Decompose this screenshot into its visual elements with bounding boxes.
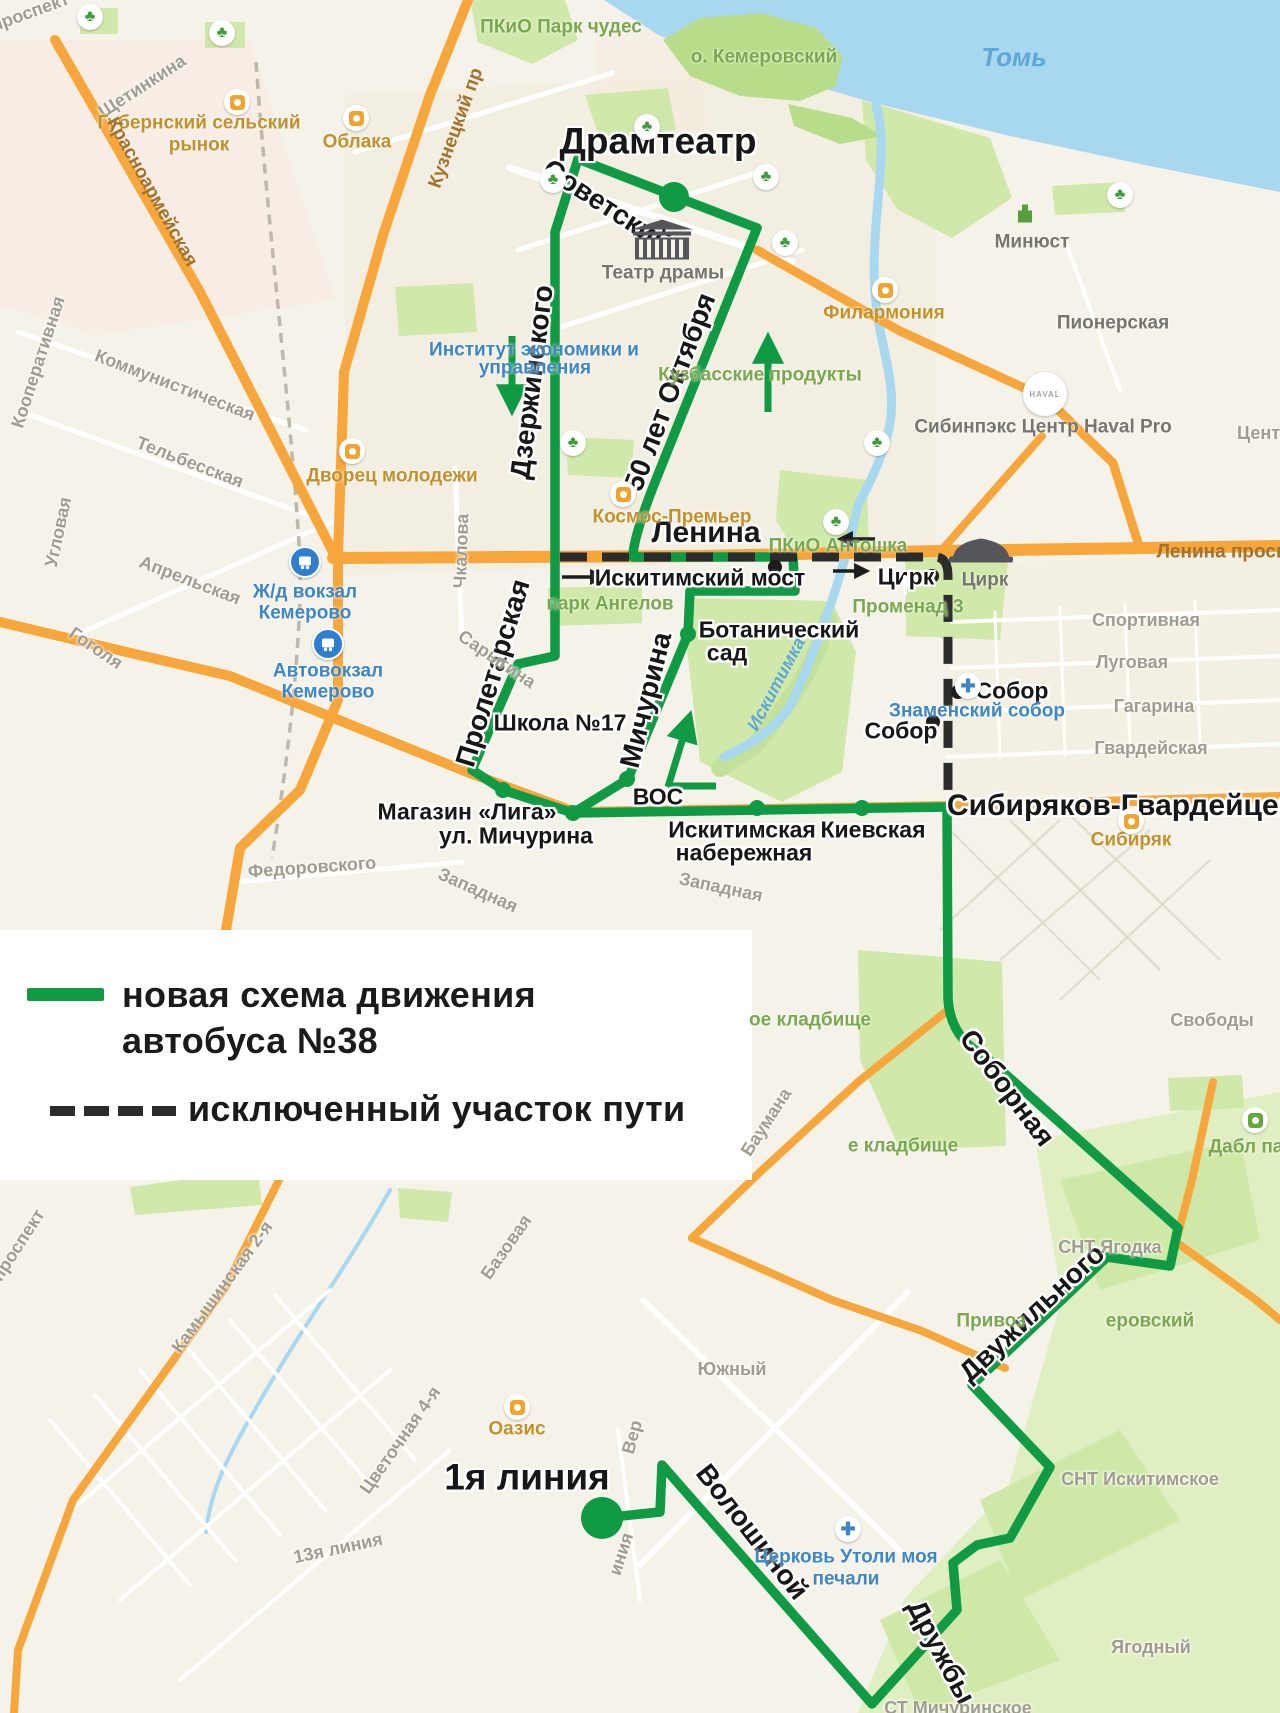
map-canvas: новая схема движения автобуса №38 исключ… — [0, 0, 1280, 1713]
route-stop-dot — [565, 805, 581, 821]
legend-new-route-label-line1: новая схема движения — [122, 974, 536, 1016]
excluded-stop-dot — [768, 560, 782, 574]
route-legend: новая схема движения автобуса №38 исключ… — [0, 930, 752, 1180]
legend-new-route-line-swatch — [27, 988, 104, 1001]
legend-new-route-label-line2: автобуса №38 — [122, 1020, 378, 1062]
excluded-stop-dot — [951, 685, 965, 699]
route-stop-dot — [680, 626, 696, 642]
route-stop-dot — [581, 1497, 623, 1539]
excluded-stop-dot — [926, 715, 940, 729]
route-stop-dot — [480, 712, 496, 728]
route-stop-dot — [749, 800, 765, 816]
route-stop-dot — [619, 771, 635, 787]
map-graphics-layer — [0, 0, 1280, 1713]
route-stop-dot — [854, 800, 870, 816]
legend-excluded-dash-swatch — [50, 1106, 176, 1116]
legend-excluded-label: исключенный участок пути — [188, 1088, 685, 1130]
excluded-stop-dot — [925, 569, 939, 583]
route-stop-dot — [659, 182, 689, 212]
route-stop-dot — [495, 782, 511, 798]
